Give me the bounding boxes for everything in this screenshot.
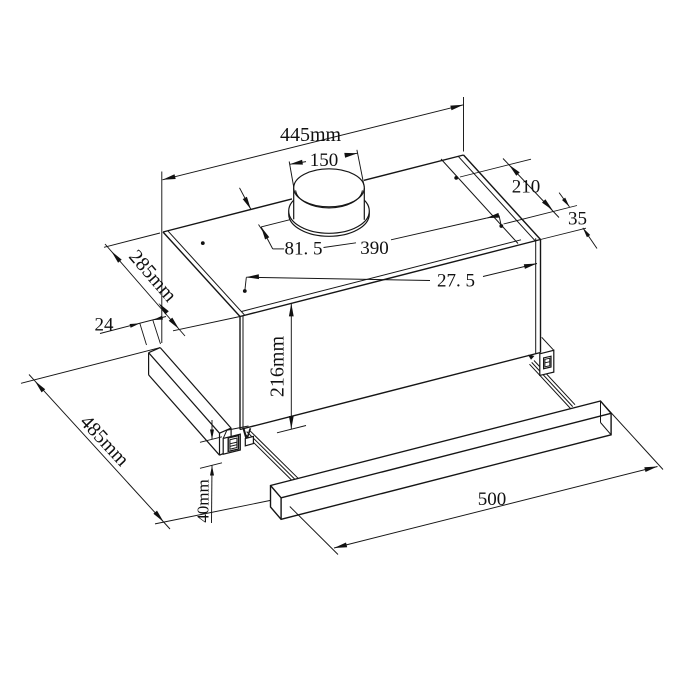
svg-text:150: 150: [310, 150, 339, 171]
svg-text:81. 5: 81. 5: [285, 239, 323, 260]
svg-text:27. 5: 27. 5: [437, 271, 475, 292]
svg-text:390: 390: [360, 238, 389, 259]
svg-text:40mm: 40mm: [194, 479, 213, 522]
svg-text:445mm: 445mm: [280, 124, 342, 146]
svg-text:216mm: 216mm: [267, 336, 289, 398]
svg-text:24: 24: [95, 315, 115, 336]
svg-text:35: 35: [568, 209, 587, 230]
svg-text:500: 500: [478, 489, 507, 510]
svg-text:210: 210: [512, 177, 541, 198]
